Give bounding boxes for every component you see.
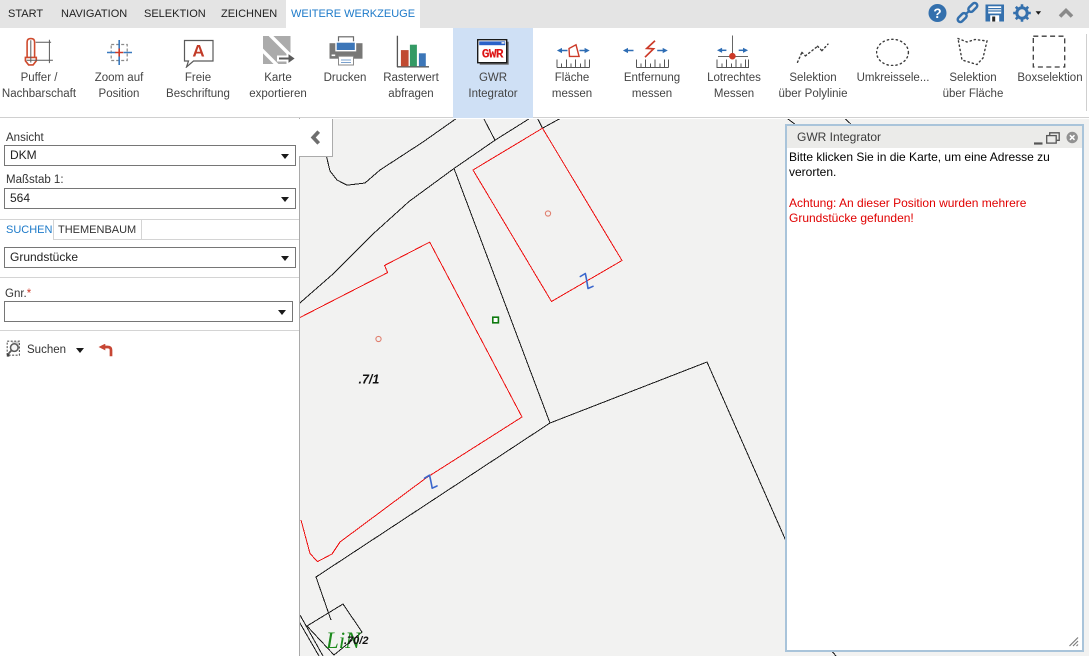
svg-text:.7/1: .7/1 [359, 373, 380, 387]
svg-text:A: A [192, 42, 204, 61]
svg-text:GWR: GWR [482, 46, 504, 61]
svg-text:.70/2: .70/2 [344, 635, 368, 647]
svg-text:?: ? [933, 6, 941, 21]
